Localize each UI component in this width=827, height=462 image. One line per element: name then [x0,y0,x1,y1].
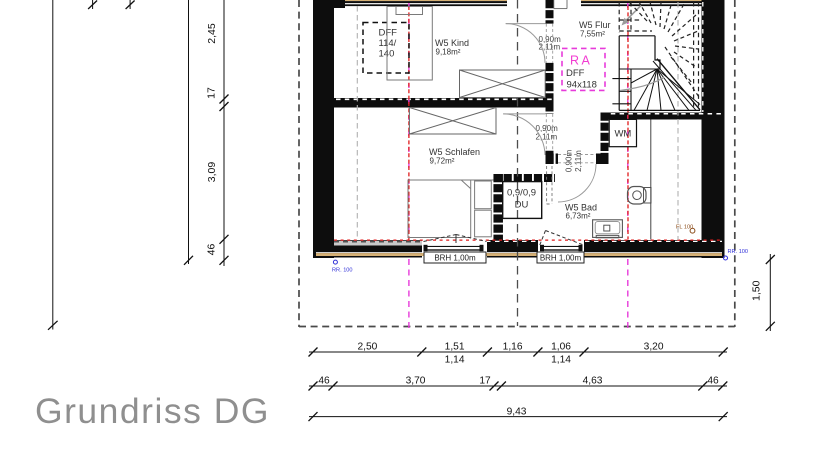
svg-text:17: 17 [206,87,218,99]
svg-text:RR. 100: RR. 100 [728,249,749,255]
svg-text:46: 46 [318,376,330,387]
svg-text:W5 Kind: W5 Kind [435,38,469,48]
svg-text:1,06: 1,06 [551,342,571,353]
svg-text:3,20: 3,20 [644,342,664,353]
svg-text:1,14: 1,14 [551,355,571,366]
svg-text:94x118: 94x118 [567,80,597,91]
svg-text:RR. 100: RR. 100 [332,268,353,274]
svg-text:Grundriss DG: Grundriss DG [35,391,270,431]
svg-text:2,50: 2,50 [357,342,377,353]
svg-text:9,72m²: 9,72m² [430,157,455,166]
svg-text:1,51: 1,51 [445,342,465,353]
svg-text:0,90m: 0,90m [565,150,574,173]
svg-text:114/: 114/ [379,38,397,49]
svg-text:1,50: 1,50 [751,280,763,301]
svg-text:2,45: 2,45 [206,23,218,44]
svg-text:2,11m: 2,11m [574,150,583,172]
svg-text:W5 Flur: W5 Flur [579,20,611,30]
svg-text:3,09: 3,09 [206,162,218,183]
svg-text:WM: WM [614,129,631,140]
svg-text:0,9/0,9: 0,9/0,9 [507,188,536,199]
svg-text:1,14: 1,14 [445,355,465,366]
svg-text:17: 17 [479,376,491,387]
svg-text:140: 140 [379,49,395,60]
svg-text:DFF: DFF [566,68,585,79]
svg-text:BRH 1,00m: BRH 1,00m [540,254,582,263]
svg-text:7,55m²: 7,55m² [580,29,605,38]
svg-text:DFF: DFF [379,28,398,39]
svg-text:RA: RA [570,54,592,68]
svg-text:46: 46 [707,376,719,387]
svg-text:9,18m²: 9,18m² [436,48,461,57]
svg-text:1,16: 1,16 [503,342,523,353]
svg-text:46: 46 [206,244,218,256]
svg-text:BRH 1,00m: BRH 1,00m [434,254,476,263]
svg-text:6,73m²: 6,73m² [566,211,591,220]
svg-text:3,70: 3,70 [406,376,426,387]
svg-text:DU: DU [515,200,529,211]
svg-text:W5 Schlafen: W5 Schlafen [429,147,480,157]
svg-text:4,63: 4,63 [583,376,603,387]
svg-text:9,43: 9,43 [507,406,527,417]
